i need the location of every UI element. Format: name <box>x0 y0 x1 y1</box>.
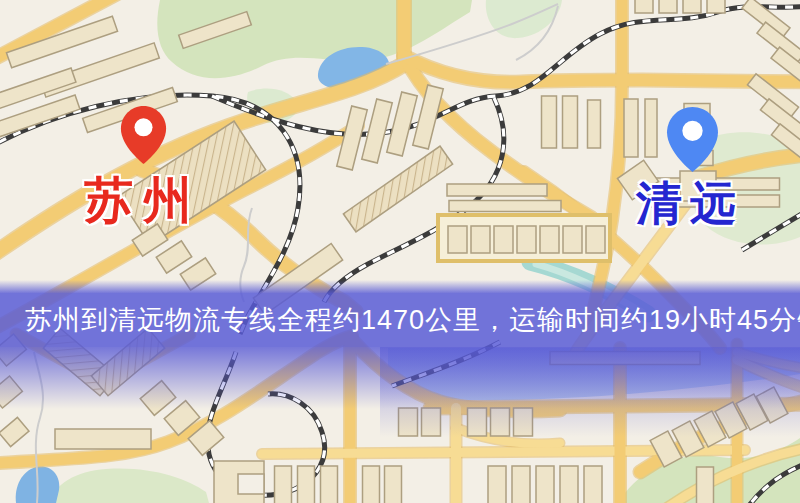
banner-fade-top <box>0 280 800 293</box>
banner-fade-right <box>380 347 800 437</box>
route-info-banner: 苏州到清远物流专线全程约1470公里，运输时间约19小时45分钟. <box>0 293 800 347</box>
origin-city-label: 苏州 <box>84 176 202 225</box>
destination-city-label: 清远 <box>636 180 744 226</box>
origin-pin-icon[interactable] <box>120 102 167 168</box>
map-screenshot: 苏州 清远 苏州到清远物流专线全程约1470公里，运输时间约19小时45分钟. <box>0 0 800 503</box>
route-info-text: 苏州到清远物流专线全程约1470公里，运输时间约19小时45分钟. <box>0 293 800 347</box>
destination-pin-icon[interactable] <box>666 105 719 174</box>
